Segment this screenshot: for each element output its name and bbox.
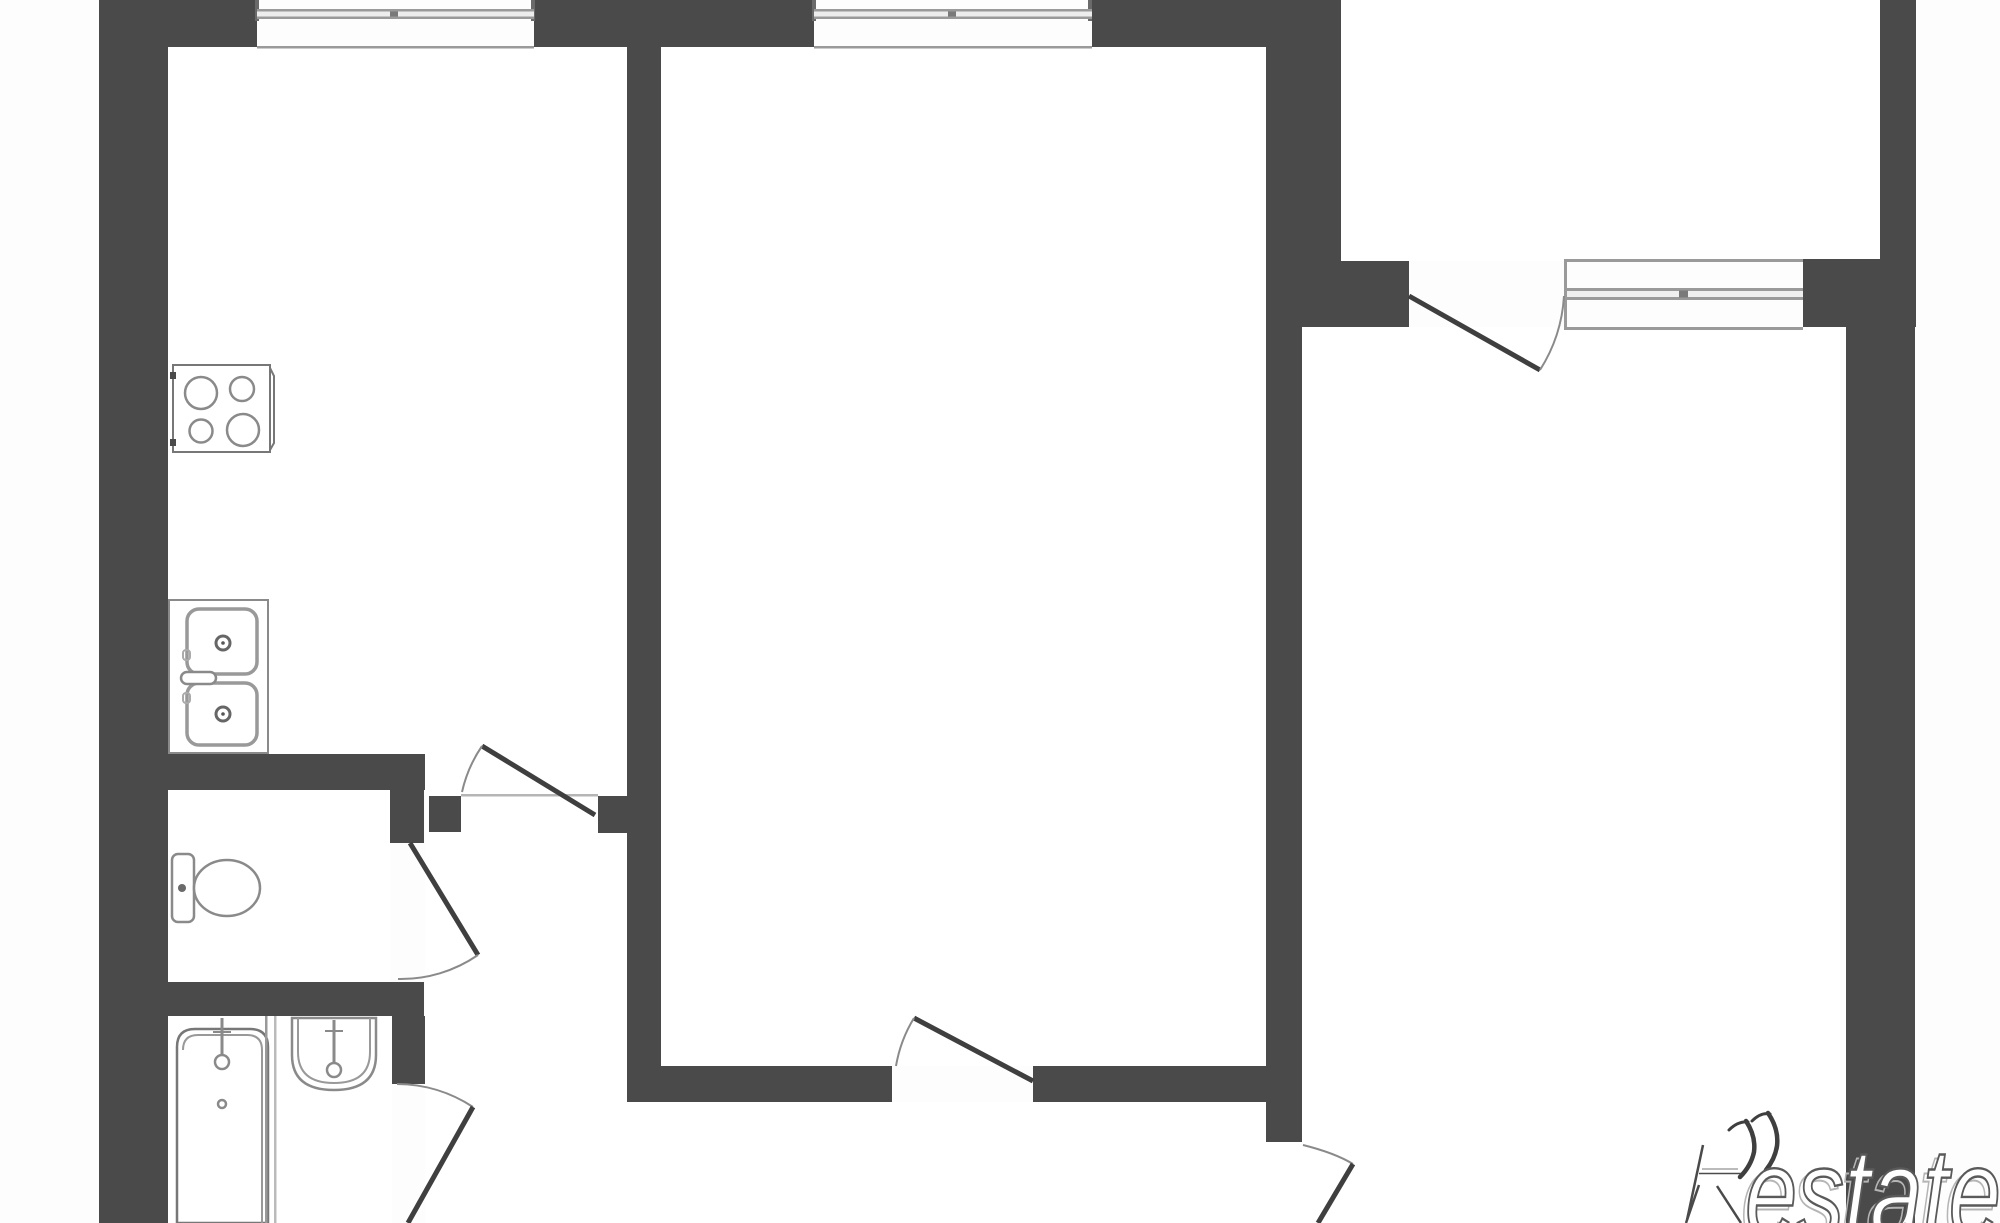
svg-text:estate: estate (1745, 1122, 2000, 1223)
